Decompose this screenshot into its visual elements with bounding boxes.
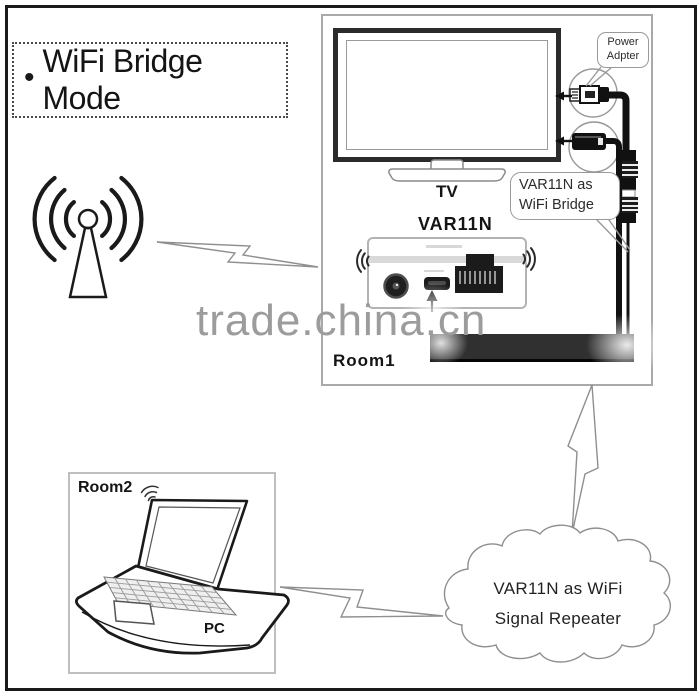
pc-label: PC (204, 620, 225, 637)
tv-icon (333, 28, 561, 162)
device-logo-mark (426, 245, 462, 248)
power-adapter-callout: Power Adpter (597, 32, 649, 68)
device-port-mark (424, 270, 444, 272)
cloud-line1: VAR11N as WiFi (448, 574, 668, 604)
room2-box (68, 472, 276, 674)
wifi-bridge-callout: VAR11N as WiFi Bridge (510, 172, 620, 220)
repeater-cloud-label: VAR11N as WiFi Signal Repeater (448, 574, 668, 634)
cloud-line2: Signal Repeater (448, 604, 668, 634)
title-bullet: • (24, 61, 35, 95)
bridge-callout-line2: WiFi Bridge (519, 196, 619, 216)
power-callout-line1: Power (598, 36, 648, 50)
tv-screen (346, 40, 548, 150)
var11n-label: VAR11N (418, 214, 493, 235)
bridge-callout-line1: VAR11N as (519, 176, 619, 196)
title-box: • WiFi Bridge Mode (12, 42, 288, 118)
tv-label: TV (436, 182, 458, 202)
power-callout-line2: Adpter (598, 50, 648, 64)
page-title: WiFi Bridge Mode (43, 43, 286, 117)
watermark-text: trade.china.cn (196, 296, 486, 346)
diagram-canvas: • WiFi Bridge Mode (0, 0, 700, 700)
room1-label: Room1 (333, 351, 396, 371)
room2-label: Room2 (78, 479, 132, 497)
device-seam (367, 256, 527, 263)
